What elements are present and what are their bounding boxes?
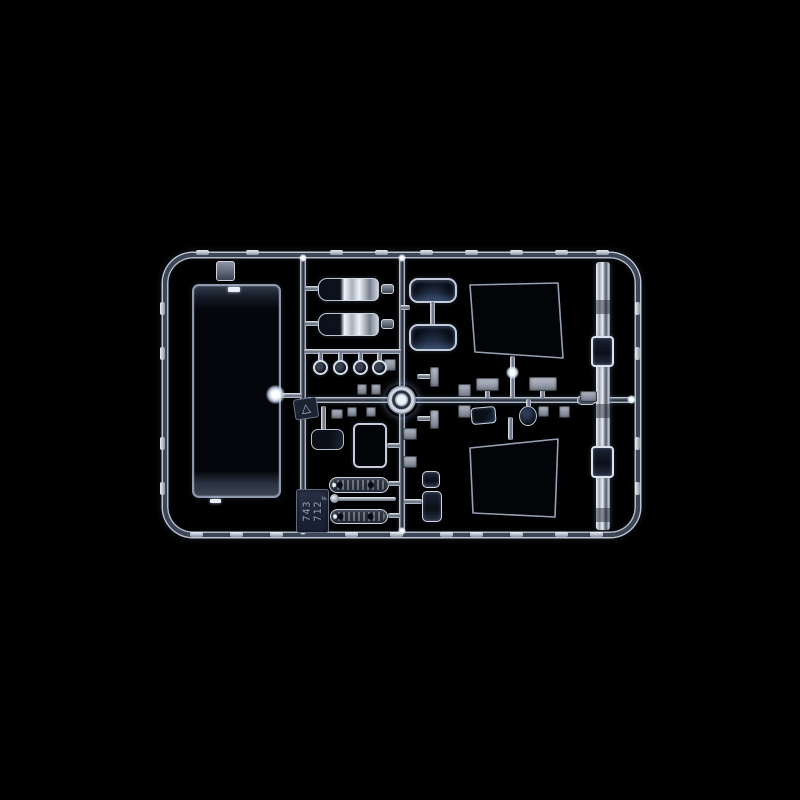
sprue-photo: △ bbox=[0, 0, 800, 800]
small-stem bbox=[387, 443, 400, 448]
frame-tab bbox=[590, 532, 603, 537]
frame-tab bbox=[246, 250, 259, 255]
frame-tab bbox=[230, 532, 243, 537]
rod-end-cap bbox=[330, 494, 339, 503]
frame-tab bbox=[465, 250, 478, 255]
small-stem bbox=[388, 513, 400, 518]
window-gate-glint bbox=[506, 366, 519, 379]
gate-pad bbox=[347, 407, 357, 417]
small-stem bbox=[430, 302, 435, 325]
frame-tab bbox=[596, 250, 609, 255]
frame-tab bbox=[635, 437, 640, 450]
visor-clip-1 bbox=[381, 284, 394, 294]
sprue-id-line2: 712 bbox=[313, 500, 324, 521]
sprue-id-line1: 743 bbox=[302, 500, 313, 521]
sprue-joint-glint bbox=[299, 254, 307, 262]
frame-tab bbox=[345, 532, 358, 537]
frame-tab bbox=[160, 482, 165, 495]
visor-stem bbox=[305, 286, 319, 291]
small-stem bbox=[404, 499, 422, 504]
recycle-triangle-tab: △ bbox=[293, 396, 320, 420]
mirror-glass-part bbox=[470, 406, 496, 425]
frame-tab bbox=[555, 250, 568, 255]
frame-tab bbox=[330, 250, 343, 255]
frame-tab bbox=[510, 532, 523, 537]
mirror-housing-part-1 bbox=[591, 336, 614, 367]
round-lamp-ring-part bbox=[385, 384, 418, 417]
frame-tab bbox=[635, 302, 640, 315]
small-stem bbox=[388, 481, 400, 486]
round-lens-part bbox=[353, 360, 368, 375]
gate-cap bbox=[476, 378, 499, 391]
headlight-lens-1 bbox=[409, 278, 457, 303]
round-lens-part bbox=[372, 360, 387, 375]
sprue-id-tag: 743 712 F bbox=[296, 489, 329, 533]
frame-tab bbox=[635, 347, 640, 360]
frame-tab bbox=[160, 302, 165, 315]
small-stem bbox=[485, 390, 490, 398]
gate-pad bbox=[357, 384, 367, 395]
frame-tab bbox=[470, 532, 483, 537]
gate-cap bbox=[529, 377, 557, 391]
small-stem bbox=[540, 390, 545, 398]
gate-pad bbox=[580, 391, 597, 402]
frame-tab bbox=[390, 532, 403, 537]
gate-pad bbox=[366, 407, 376, 417]
frame-tab bbox=[375, 250, 388, 255]
frame-square-tab bbox=[216, 261, 235, 281]
visor-stem bbox=[305, 321, 319, 326]
recycle-triangle-icon: △ bbox=[300, 400, 311, 415]
gate-pad bbox=[458, 384, 471, 397]
windshield-top-gate bbox=[228, 287, 240, 292]
strip-shading bbox=[596, 262, 610, 530]
gate-cap bbox=[430, 410, 439, 429]
frame-tab bbox=[420, 250, 433, 255]
visor-clip-2 bbox=[381, 319, 394, 329]
gate-pad bbox=[458, 405, 471, 418]
gate-pad bbox=[331, 409, 343, 419]
sprue-id-numbers: 743 712 bbox=[302, 500, 324, 521]
windshield-gate-glint bbox=[266, 385, 285, 404]
frame-tab bbox=[270, 532, 283, 537]
windshield-bottom-gate bbox=[210, 499, 221, 503]
gate-pad bbox=[403, 456, 417, 468]
gate-pad bbox=[403, 428, 417, 440]
windshield-stem bbox=[282, 393, 302, 398]
side-window-bottom-outline bbox=[470, 439, 558, 517]
frame-tab bbox=[635, 482, 640, 495]
small-lens-box-1 bbox=[422, 471, 440, 488]
small-stem bbox=[400, 305, 410, 310]
frame-tab bbox=[555, 532, 568, 537]
side-window-bottom-part bbox=[460, 430, 568, 525]
roof-lightbar-strip-part bbox=[596, 262, 610, 530]
gate-pad bbox=[538, 406, 549, 417]
frame-tab bbox=[440, 532, 453, 537]
gate-pad bbox=[371, 384, 381, 395]
round-lens-part bbox=[333, 360, 348, 375]
frame-tab bbox=[160, 347, 165, 360]
headlight-lens-2 bbox=[409, 324, 457, 351]
small-lens-box-2 bbox=[422, 491, 442, 522]
frame-tab bbox=[196, 250, 209, 255]
visor-part-1 bbox=[318, 278, 379, 301]
window-stem bbox=[508, 417, 513, 440]
mirror-housing-part-2 bbox=[591, 446, 614, 478]
frame-tab bbox=[160, 437, 165, 450]
round-lens-part bbox=[313, 360, 328, 375]
frame-tab bbox=[510, 250, 523, 255]
side-window-top-outline bbox=[470, 283, 563, 358]
gate-cap bbox=[430, 367, 439, 387]
frame-tab bbox=[190, 532, 203, 537]
round-dark-lens-part bbox=[519, 406, 537, 426]
sprue-joint-glint bbox=[398, 254, 406, 262]
rod-part bbox=[334, 497, 396, 501]
lightbar-part-2 bbox=[330, 509, 388, 524]
small-window-part bbox=[353, 423, 387, 468]
visor-part-2 bbox=[318, 313, 379, 336]
gate-pad bbox=[559, 406, 570, 418]
step-lamp-part bbox=[311, 429, 344, 450]
sprue-joint-glint bbox=[627, 395, 636, 404]
side-window-top-part bbox=[460, 274, 572, 366]
sprue-id-suffix: F bbox=[321, 496, 329, 500]
lightbar-part-1 bbox=[329, 477, 389, 493]
